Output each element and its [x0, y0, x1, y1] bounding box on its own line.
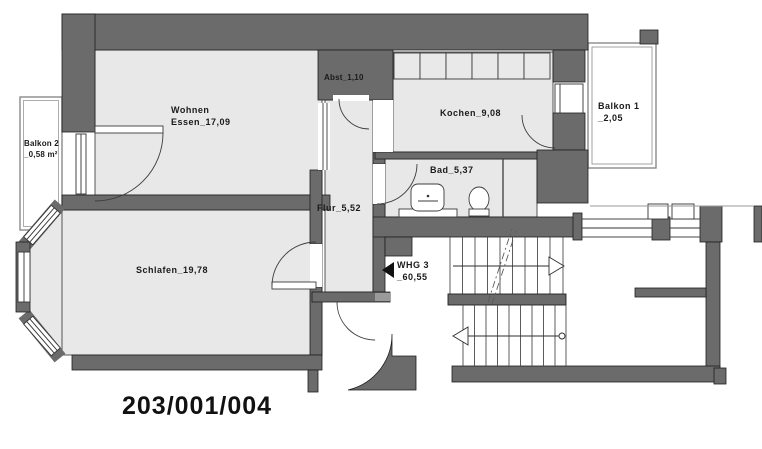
label-abst: Abst_1,10: [324, 72, 364, 83]
floor-plan-drawing: [0, 0, 762, 449]
entrance-curved-wall: [348, 334, 416, 390]
kitchen-counter: [394, 53, 550, 79]
label-whg3: WHG 3 _60,55: [397, 259, 429, 283]
label-flur: Flur_5,52: [317, 202, 361, 214]
label-wohnen: Wohnen Essen_17,09: [171, 104, 231, 128]
label-bad: Bad_5,37: [430, 164, 474, 176]
plan-number: 203/001/004: [122, 392, 272, 421]
stairs: [448, 229, 566, 366]
stair-landing-bar: [448, 294, 566, 305]
label-kochen: Kochen_9,08: [440, 107, 501, 119]
label-balkon2: Balkon 2 _0,58 m²: [24, 138, 59, 160]
label-balkon1: Balkon 1 _2,05: [598, 100, 640, 124]
floor-plan: Wohnen Essen_17,09 Abst_1,10 Kochen_9,08…: [0, 0, 762, 449]
washbasin: [411, 184, 444, 211]
label-schlafen: Schlafen_19,78: [136, 264, 208, 276]
stair-arrow-up-icon: [453, 257, 564, 275]
toilet: [469, 187, 489, 211]
stair-break-line: [488, 229, 516, 304]
stair-treads-lower: [463, 305, 566, 366]
